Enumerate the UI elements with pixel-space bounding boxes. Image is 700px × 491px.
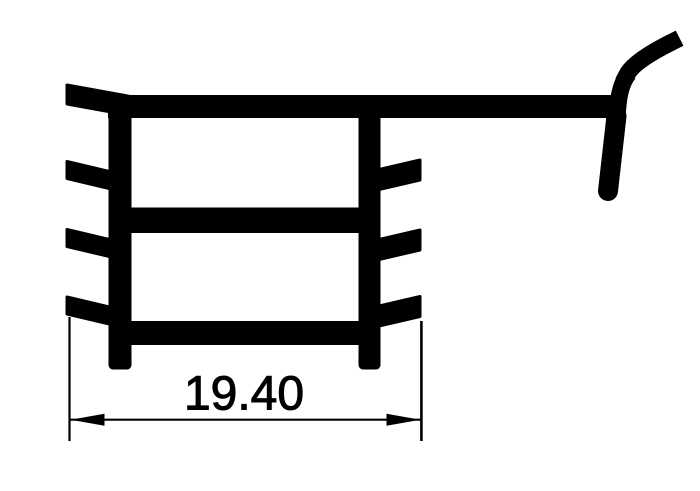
svg-text:19.40: 19.40 bbox=[184, 368, 304, 421]
